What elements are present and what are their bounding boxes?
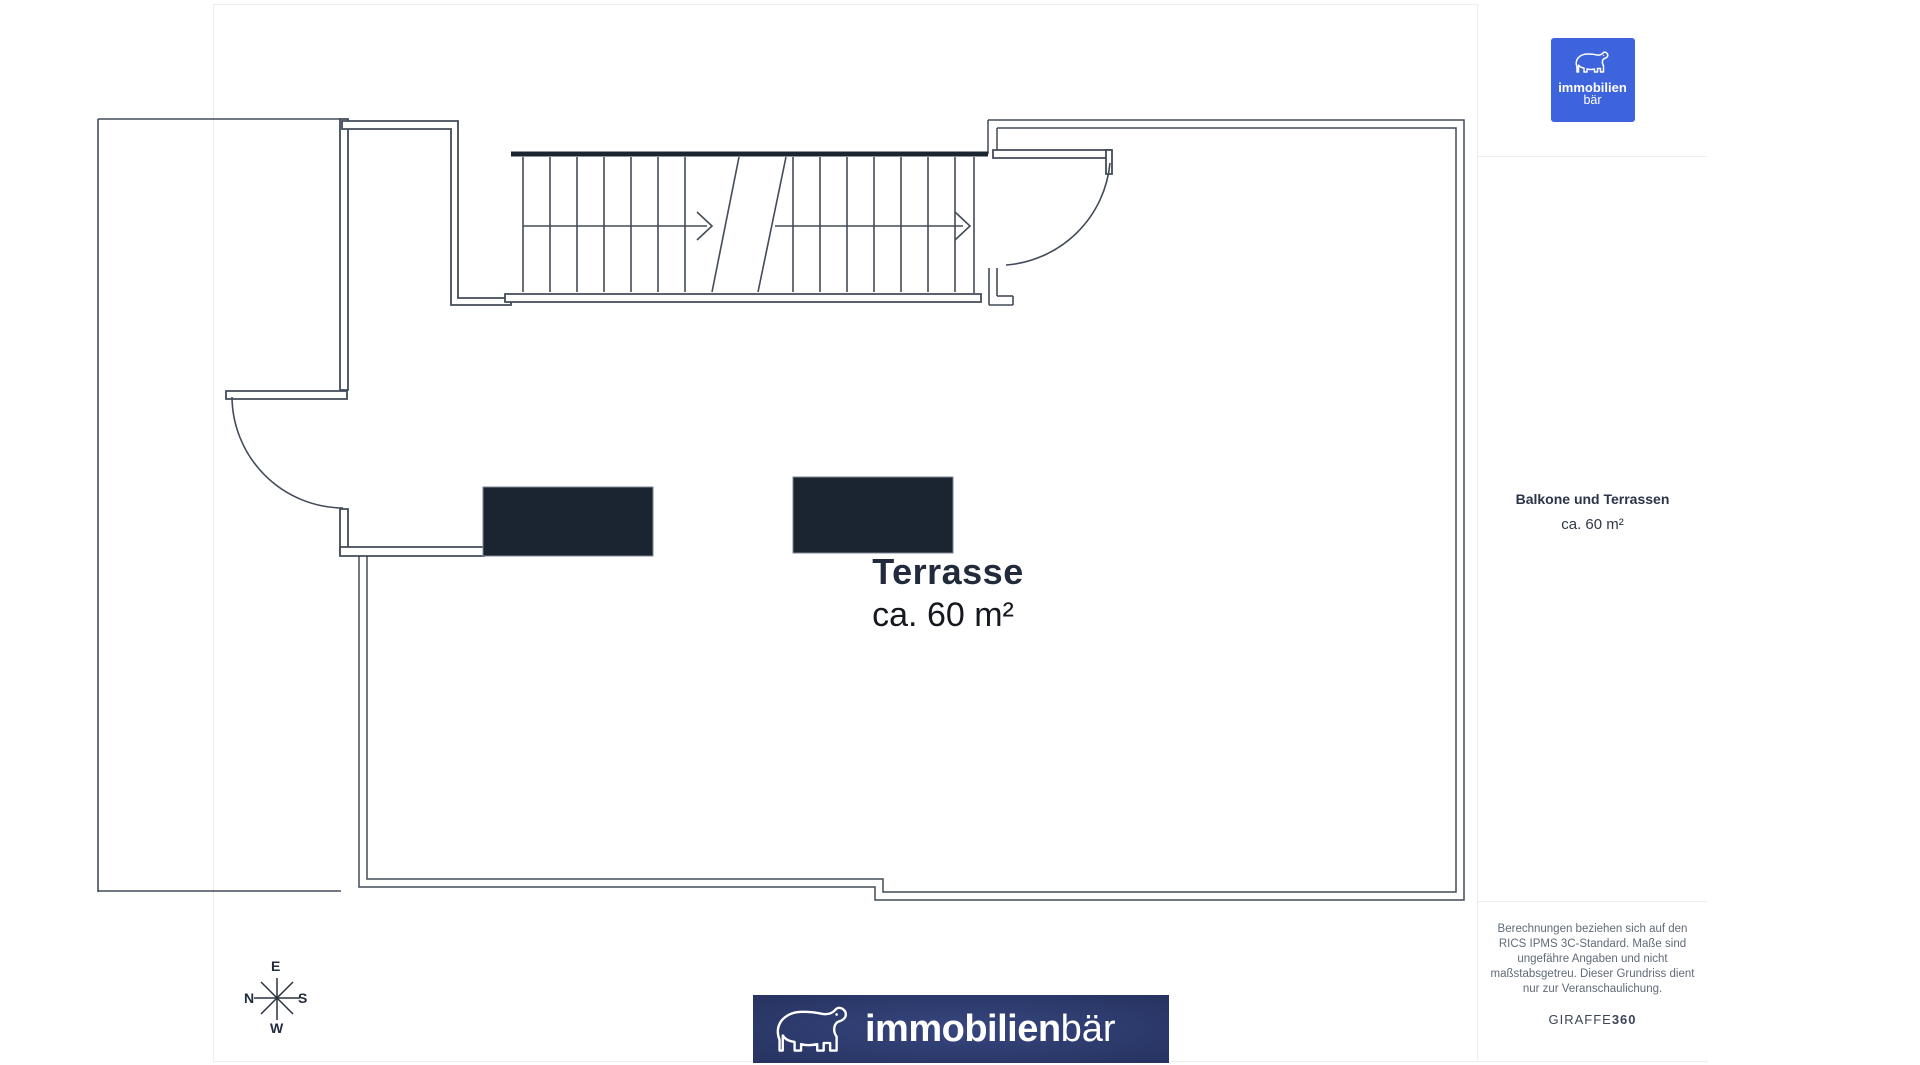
planter-block-left	[483, 487, 653, 556]
giraffe360-brand: GIRAFFE360	[1478, 1012, 1707, 1027]
compass-top-label: E	[271, 958, 280, 974]
bear-icon	[1574, 49, 1612, 75]
footer-logo-light: bär	[1061, 1008, 1116, 1050]
wall-planter-left	[340, 547, 484, 556]
sidebar: immobilien bär Balkone und Terrassen ca.…	[1477, 4, 1707, 1060]
bear-icon	[773, 1001, 855, 1057]
wall-left-vertical	[340, 119, 348, 390]
compass-rose: E N S W	[226, 946, 336, 1056]
disclaimer-text: Berechnungen beziehen sich auf den RICS …	[1489, 922, 1697, 997]
staircase	[505, 154, 988, 302]
floorplan-page: Terrasse ca. 60 m² E N S W immobilienbär	[0, 0, 1920, 1065]
door-swing-top	[989, 163, 1110, 305]
stair-break-lines	[712, 157, 786, 292]
compass-star-icon	[226, 946, 336, 1056]
door-leaf-top	[993, 150, 1111, 158]
sidebar-divider-bottom	[1478, 901, 1707, 902]
compass-left-label: N	[244, 990, 254, 1006]
area-summary-value: ca. 60 m²	[1478, 516, 1707, 533]
area-summary-title: Balkone und Terrassen	[1478, 491, 1707, 507]
planter-blocks	[483, 477, 953, 556]
company-logo: immobilien bär	[1551, 38, 1635, 122]
walls	[226, 119, 1112, 556]
lower-terrace-outline	[98, 119, 341, 892]
wall-stair-left	[342, 121, 511, 305]
giraffe360-name: GIRAFFE	[1548, 1012, 1611, 1027]
footer-brand-banner: immobilienbär	[753, 995, 1169, 1063]
area-summary: Balkone und Terrassen ca. 60 m²	[1478, 491, 1707, 533]
footer-logo-text: immobilienbär	[865, 1008, 1116, 1051]
giraffe360-suffix: 360	[1612, 1012, 1637, 1027]
stair-direction-arrows	[523, 212, 970, 240]
compass-bottom-label: W	[270, 1020, 283, 1036]
door-swing-left	[232, 397, 343, 508]
stair-treads	[523, 157, 955, 292]
footer-logo-bold: immobilien	[865, 1008, 1061, 1050]
wall-door-header-left	[226, 391, 347, 399]
room-label: Terrasse	[798, 551, 1098, 593]
compass-right-label: S	[298, 990, 307, 1006]
planter-block-right	[793, 477, 953, 553]
room-area-label: ca. 60 m²	[793, 596, 1093, 635]
stair-bottom-edge	[505, 294, 981, 302]
company-logo-line2: bär	[1551, 94, 1635, 107]
sidebar-divider-top	[1478, 156, 1707, 157]
